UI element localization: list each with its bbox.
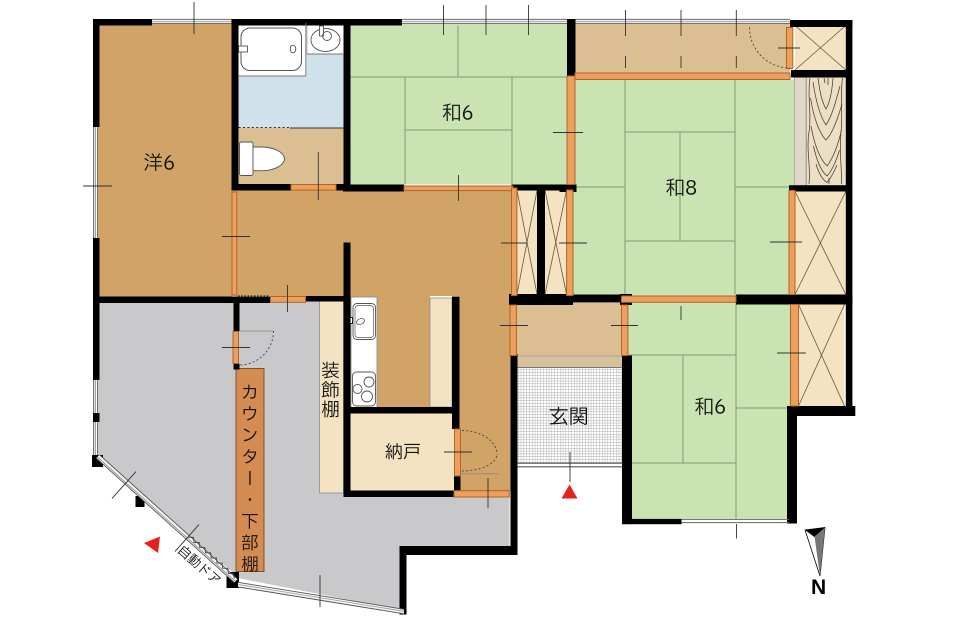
svg-text:N: N [811, 576, 826, 599]
